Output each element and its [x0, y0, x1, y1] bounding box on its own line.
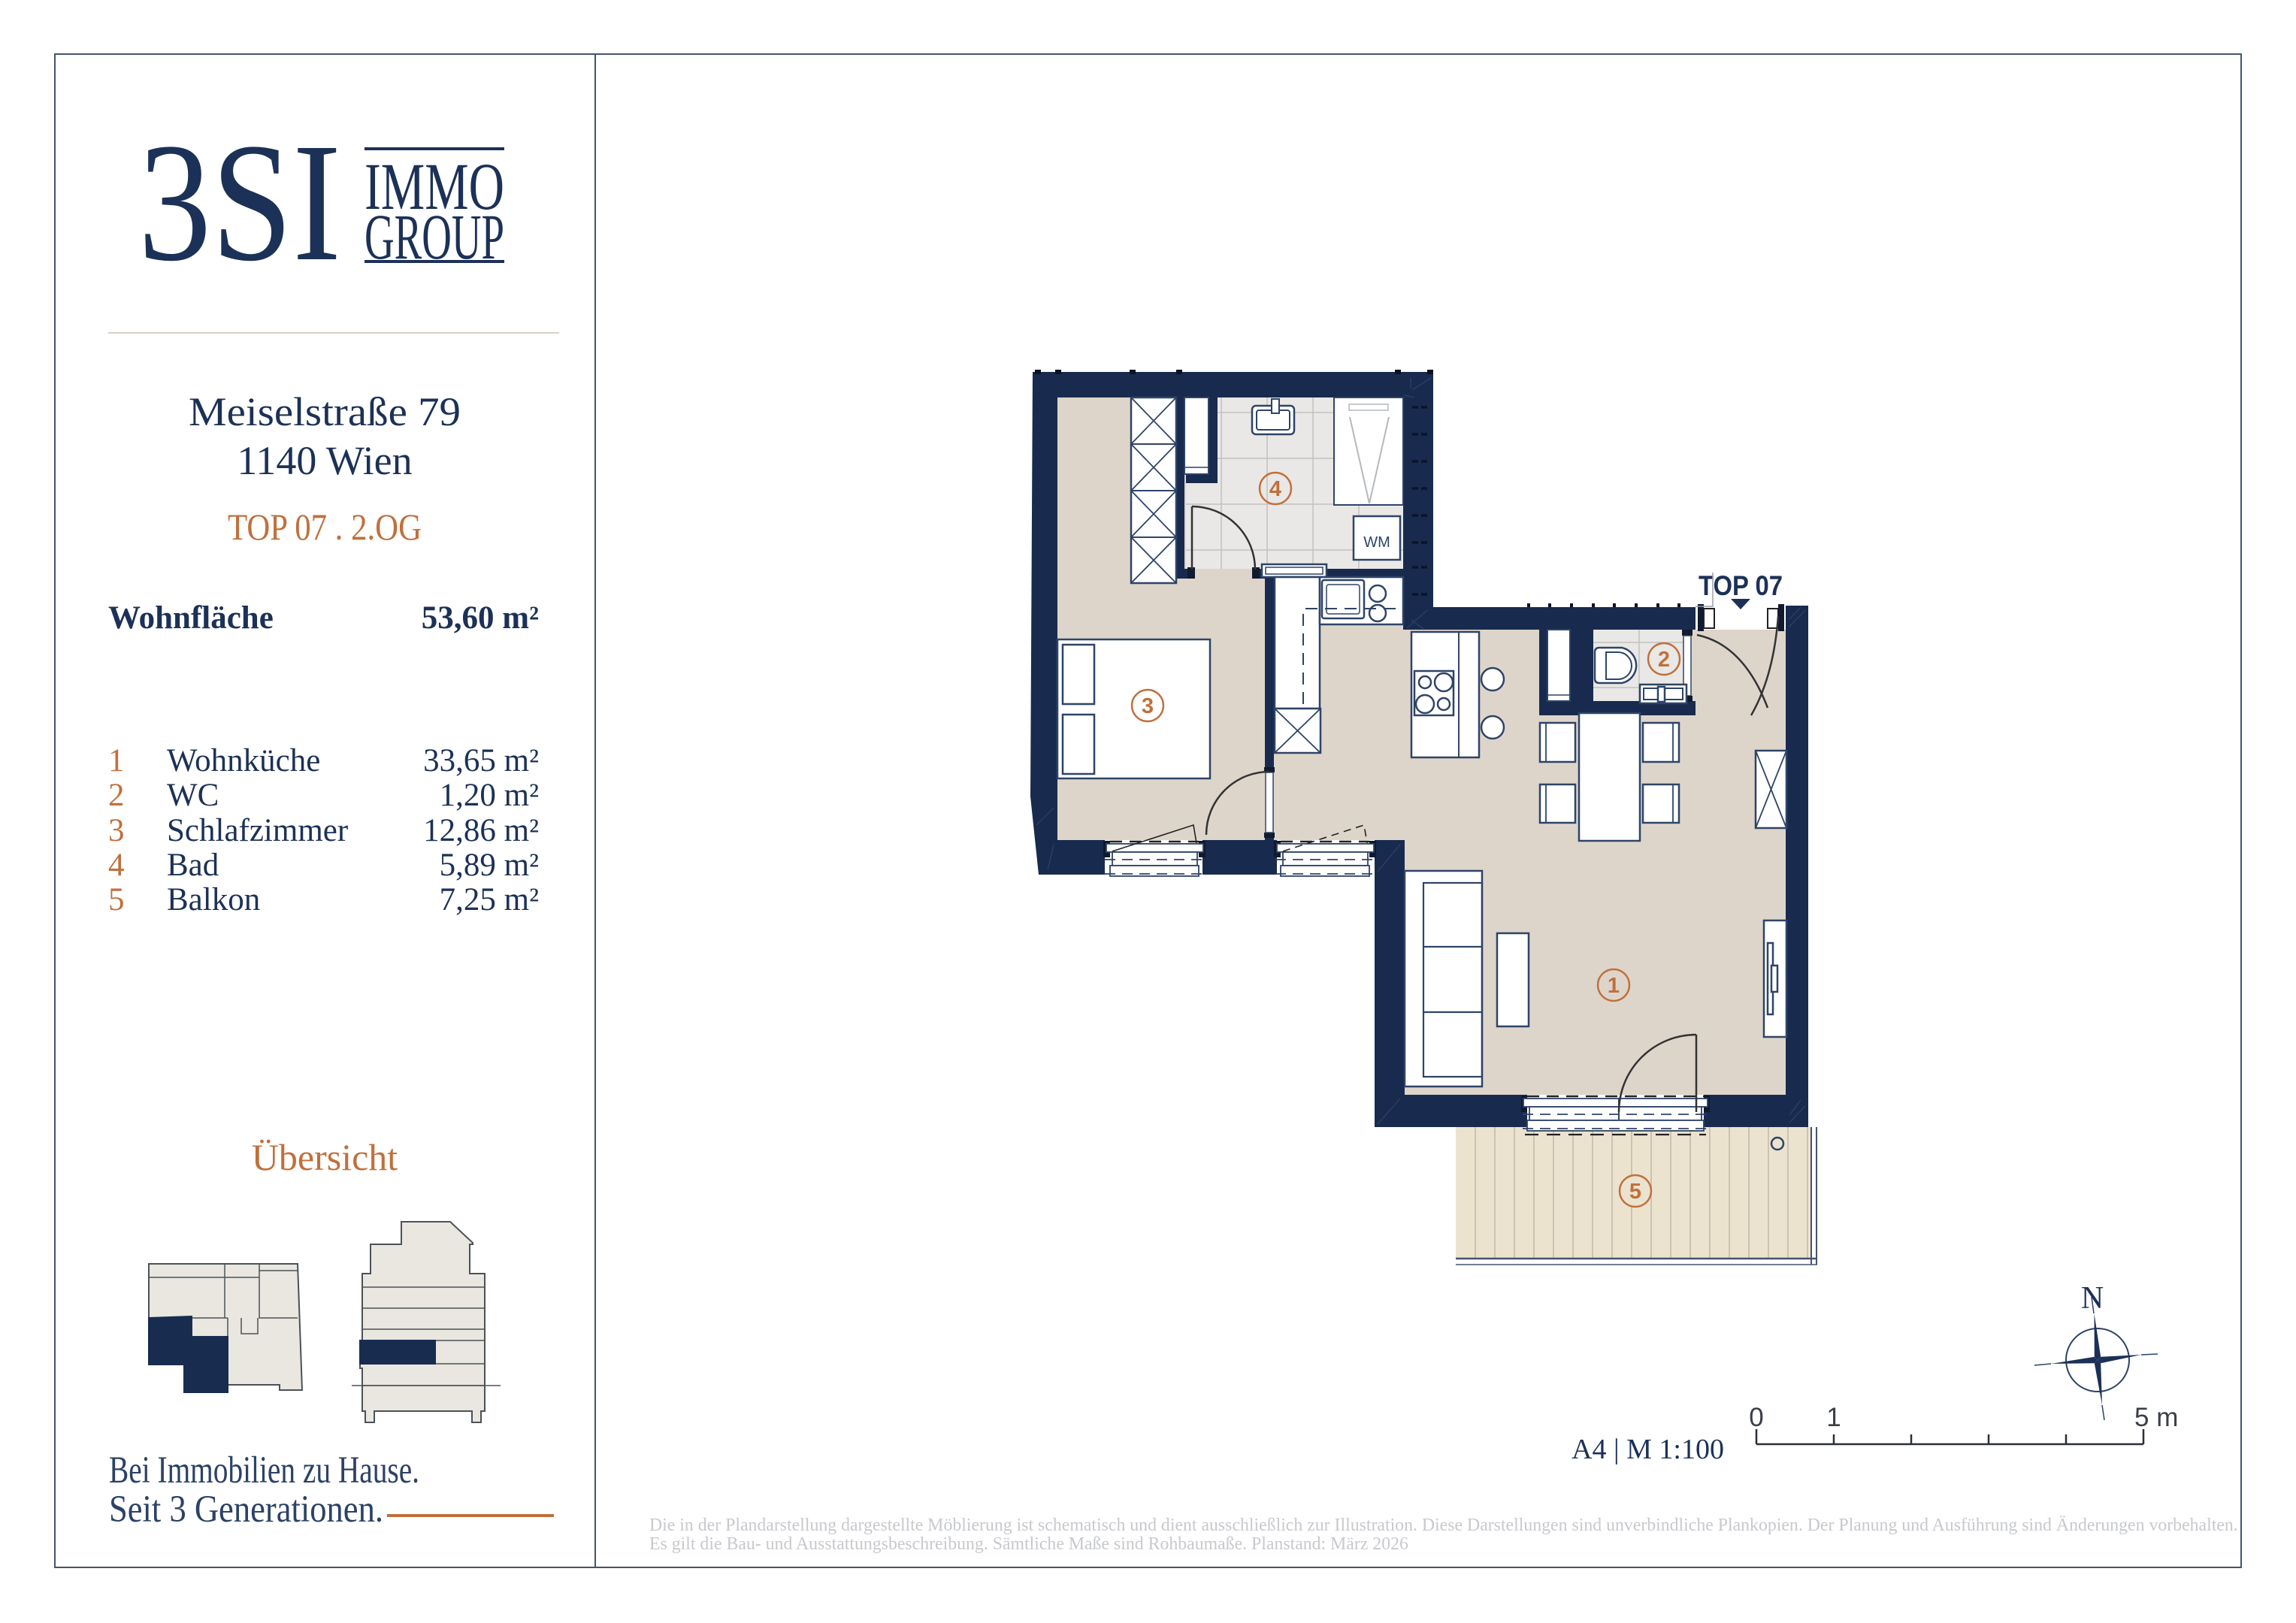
svg-text:3: 3	[1142, 694, 1154, 718]
svg-text:33,65 m²: 33,65 m²	[423, 743, 539, 778]
svg-text:Balkon: Balkon	[167, 882, 260, 917]
svg-text:3: 3	[108, 813, 125, 848]
svg-text:Wohnküche: Wohnküche	[167, 743, 320, 778]
svg-text:3SI: 3SI	[138, 108, 341, 296]
svg-text:WC: WC	[167, 778, 219, 813]
svg-text:Bei Immobilien zu Hause.: Bei Immobilien zu Hause.	[109, 1449, 419, 1492]
svg-text:5,89 m²: 5,89 m²	[440, 848, 539, 883]
svg-text:Wohnfläche: Wohnfläche	[108, 600, 274, 636]
svg-text:5: 5	[108, 882, 125, 917]
svg-text:5 m: 5 m	[2134, 1403, 2178, 1432]
svg-text:53,60 m²: 53,60 m²	[422, 600, 539, 636]
svg-text:5: 5	[1629, 1180, 1641, 1204]
svg-text:Meiselstraße 79: Meiselstraße 79	[189, 389, 461, 434]
svg-text:1: 1	[1608, 974, 1620, 998]
svg-text:1: 1	[108, 743, 125, 778]
svg-text:Die in der Plandarstellung dar: Die in der Plandarstellung dargestellte …	[649, 1516, 2238, 1535]
svg-text:1: 1	[1826, 1403, 1841, 1432]
svg-text:WM: WM	[1363, 534, 1390, 551]
svg-text:Bad: Bad	[167, 848, 219, 883]
svg-text:1,20 m²: 1,20 m²	[440, 778, 539, 813]
svg-text:TOP 07 . 2.OG: TOP 07 . 2.OG	[228, 506, 422, 548]
svg-text:4: 4	[108, 848, 125, 883]
svg-text:Es gilt die Bau- und Ausstattu: Es gilt die Bau- und Ausstattungsbeschre…	[649, 1534, 1408, 1554]
svg-text:7,25 m²: 7,25 m²	[440, 882, 539, 917]
svg-text:Seit 3 Generationen.: Seit 3 Generationen.	[109, 1489, 383, 1531]
svg-text:N: N	[2081, 1281, 2104, 1316]
svg-text:0: 0	[1749, 1403, 1763, 1432]
svg-text:2: 2	[108, 778, 125, 813]
svg-text:A4 | M 1:100: A4 | M 1:100	[1572, 1434, 1724, 1465]
svg-text:Schlafzimmer: Schlafzimmer	[167, 813, 348, 848]
svg-text:1140 Wien: 1140 Wien	[237, 438, 412, 483]
svg-text:TOP 07: TOP 07	[1699, 570, 1783, 601]
svg-text:2: 2	[1658, 648, 1670, 672]
svg-text:4: 4	[1269, 477, 1281, 501]
svg-text:12,86 m²: 12,86 m²	[423, 813, 539, 848]
svg-text:Übersicht: Übersicht	[252, 1136, 398, 1178]
